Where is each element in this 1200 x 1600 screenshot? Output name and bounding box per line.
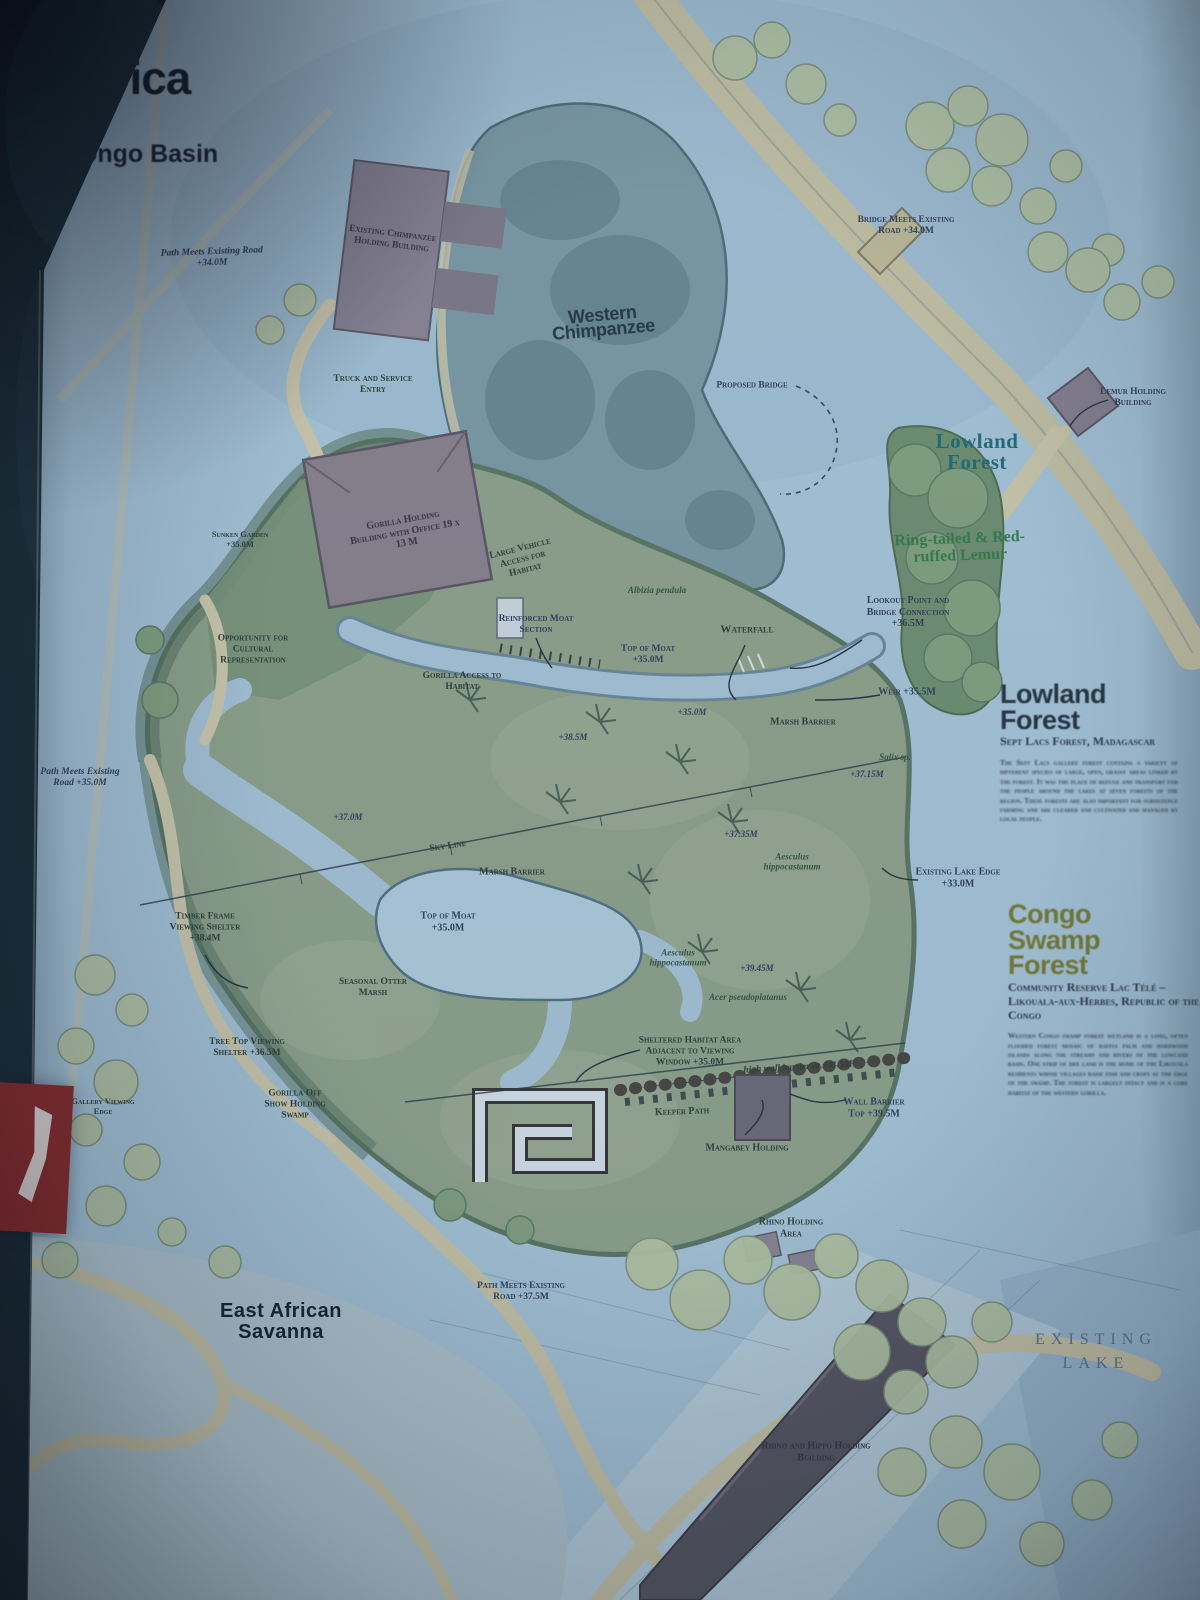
site-plan-map [0, 0, 1200, 1600]
plan-sheet: Africa Congo Basin Path Meets Existing R… [0, 0, 1200, 1600]
gorilla-holding-building [303, 431, 492, 607]
page-marker-tab [0, 1082, 74, 1234]
photographed-plan: Africa Congo Basin Path Meets Existing R… [0, 0, 1200, 1600]
tab-glyph-icon [0, 1082, 74, 1234]
